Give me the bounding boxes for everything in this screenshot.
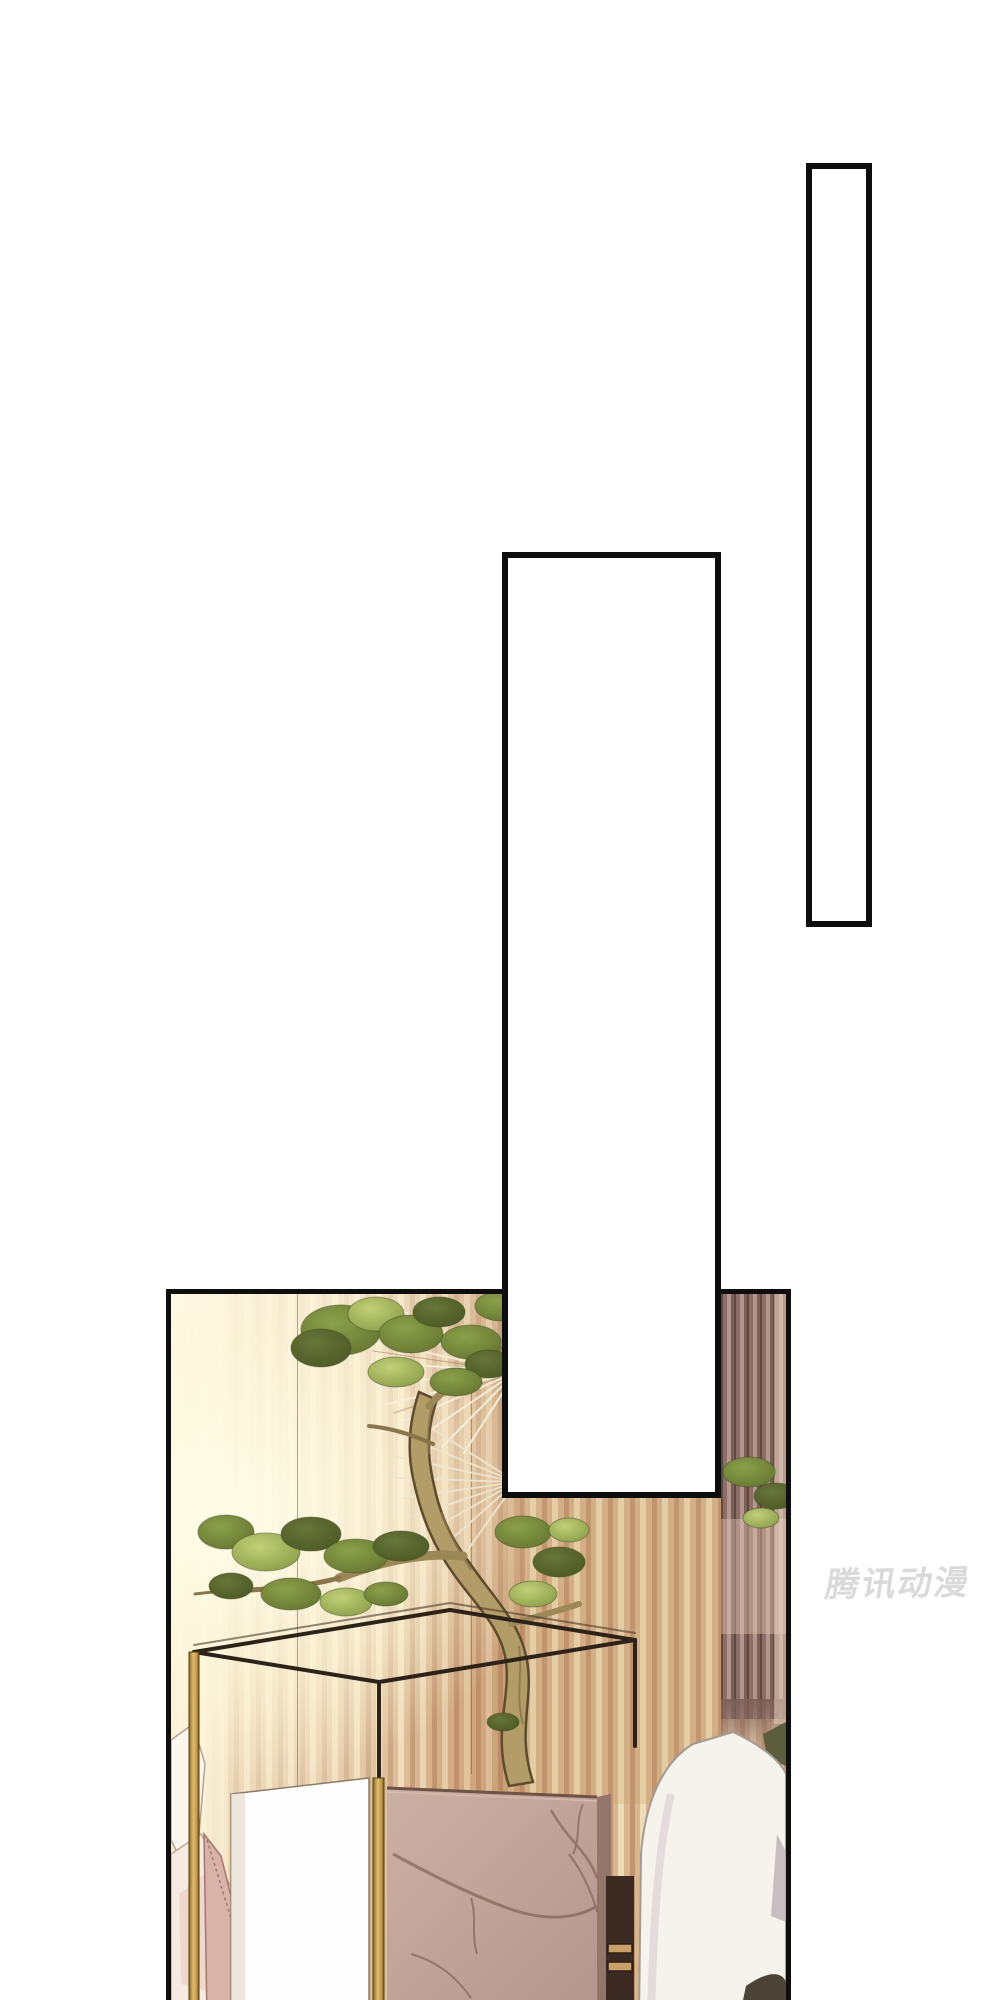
white-board (231, 1778, 369, 2000)
pillow-right (639, 1722, 786, 2000)
comic-page: 腾讯动漫 (0, 0, 1000, 2000)
speech-box-wide (502, 552, 721, 1498)
case-gold-edge-left (189, 1652, 199, 2000)
watermark-tencent-comics: 腾讯动漫 (822, 1559, 1000, 1610)
speech-box-narrow (806, 163, 872, 927)
marble-pedestal (387, 1788, 611, 2000)
door-post (606, 1876, 634, 2000)
case-gold-edge-front (373, 1778, 384, 2000)
